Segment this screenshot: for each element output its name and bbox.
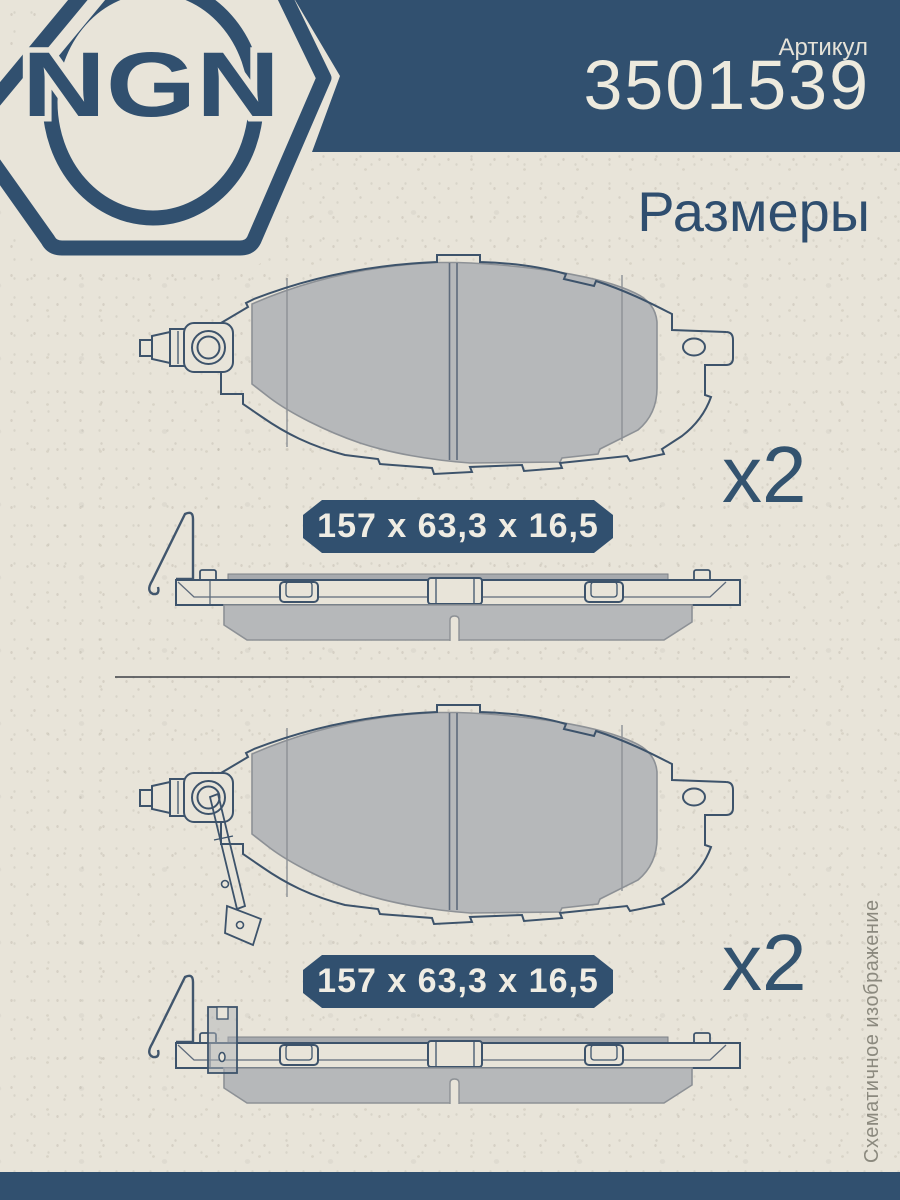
quantity-badge-2: x2	[722, 923, 807, 1003]
dimensions-text-1: 157 x 63,3 x 16,5	[317, 507, 599, 546]
page-title: Размеры	[637, 184, 870, 240]
schematic-note: Схематичное изображение	[861, 899, 884, 1163]
product-card: NGN	[0, 0, 900, 1200]
quantity-badge-1: x2	[722, 435, 807, 515]
section-divider	[115, 676, 790, 678]
dimensions-badge-1: 157 x 63,3 x 16,5	[303, 500, 613, 553]
brake-pad-front-view-drawing-1	[130, 248, 770, 498]
dimensions-badge-2: 157 x 63,3 x 16,5	[303, 955, 613, 1008]
logo-text: NGN	[22, 34, 280, 136]
bottom-bar	[0, 1172, 900, 1200]
brake-pad-front-view-drawing-2	[130, 698, 770, 948]
dimensions-text-2: 157 x 63,3 x 16,5	[317, 962, 599, 1001]
article-number: 3501539	[583, 50, 870, 120]
